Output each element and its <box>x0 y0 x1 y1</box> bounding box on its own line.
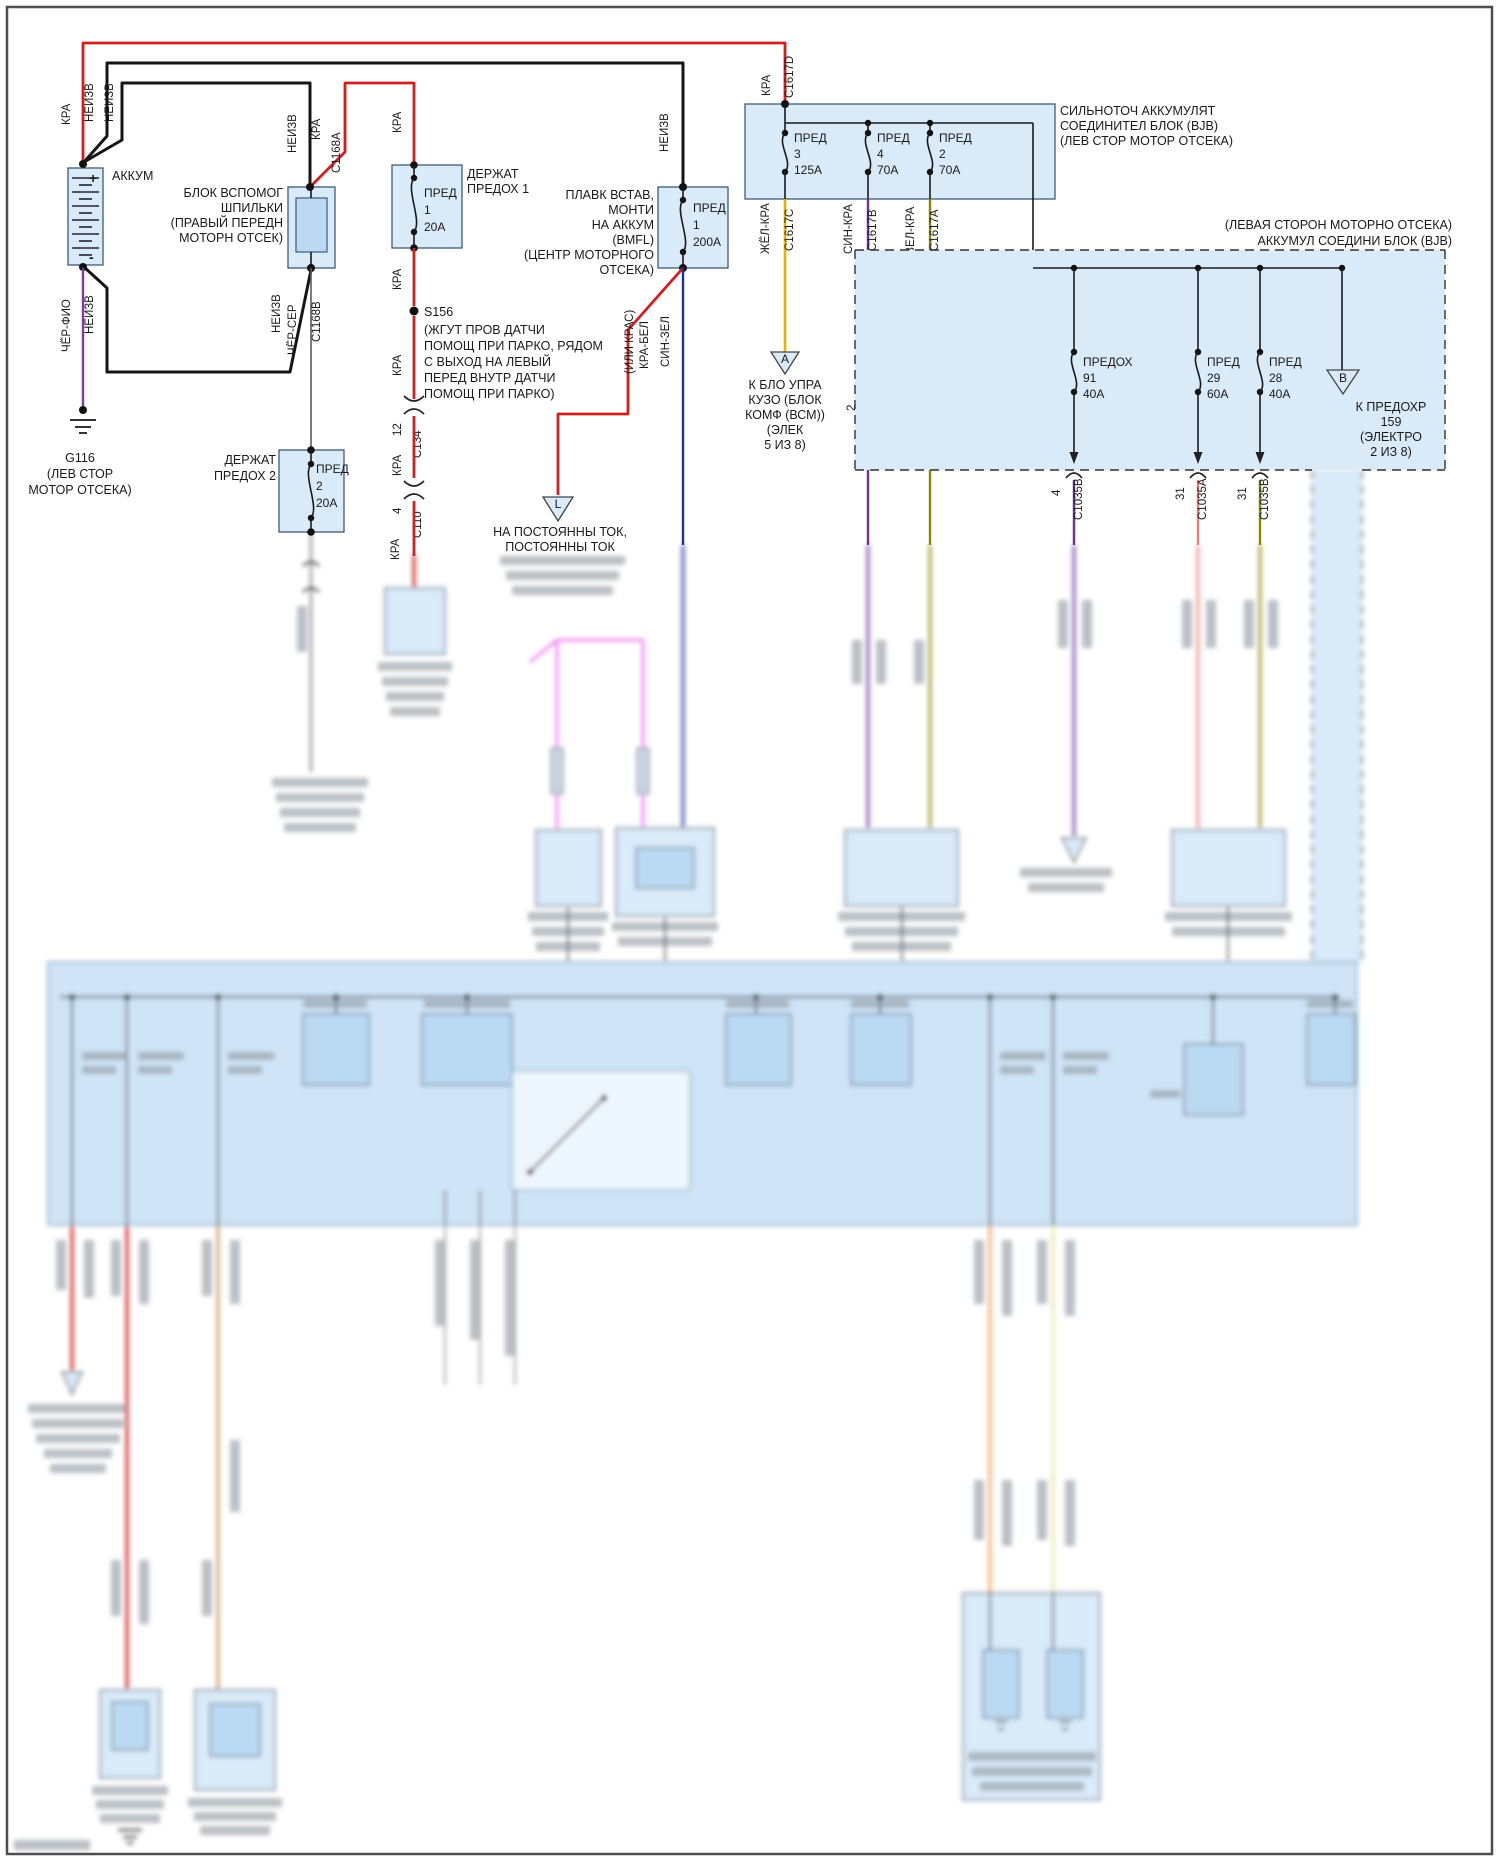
f91-pin: 4 <box>1051 489 1063 496</box>
stud-top-kra: КРА <box>311 118 323 140</box>
f28-amp: 40А <box>1269 387 1290 401</box>
fh2-fuse-amp: 20А <box>316 496 337 510</box>
ref-b-line4: 2 ИЗ 8) <box>1370 445 1412 459</box>
blurred-components-middle <box>272 556 1292 962</box>
ref-l-line1: НА ПОСТОЯННЫ ТОК, <box>493 525 627 539</box>
bjb-f3-name: ПРЕД <box>794 131 827 145</box>
battery-symbol <box>68 168 103 265</box>
bjb-wire-in: КРА <box>761 74 773 96</box>
fh1-fuse-num: 1 <box>424 203 431 217</box>
ref-b-line1: К ПРЕДОХР <box>1356 400 1427 414</box>
battery-minus: - <box>89 249 94 265</box>
wiring-diagram-page: + - АККУМ КРА НЕИЗВ НЕИЗВ ЧЁР-ФИО НЕИЗВ … <box>0 0 1500 1861</box>
ref-b-line3: (ЭЛЕКТРО <box>1360 430 1422 444</box>
s156-line3: С ВЫХОД НА ЛЕВЫЙ <box>424 354 551 369</box>
bjb-title-2: СОЕДИНИТЕЛ БЛОК (BJB) <box>1060 119 1218 133</box>
splice-s156: S156 (ЖГУТ ПРОВ ДАТЧИ ПОМОЩ ПРИ ПАРКО, Р… <box>392 305 603 401</box>
blurred-junction-panel <box>48 962 1357 1225</box>
bmfl-line3: НА АККУМ <box>592 218 654 232</box>
f29-pin: 31 <box>1175 487 1187 500</box>
stud-bot-neizv: НЕИЗВ <box>271 294 283 333</box>
bmfl-line6: ОТСЕКА) <box>599 263 654 277</box>
stud-top-neizv: НЕИЗВ <box>287 114 299 153</box>
fh1-fuse-name: ПРЕД <box>424 186 457 200</box>
bmfl-block: НЕИЗВ ПЛАВК ВСТАВ, МОНТИ НА АККУМ (BMFL)… <box>524 113 728 545</box>
s156-wire-below: КРА <box>392 354 404 376</box>
ref-a-line3: КОМФ (ВСМ)) <box>745 408 825 422</box>
f28-pin: 31 <box>1237 487 1249 500</box>
bjb-f2-wire: ЗЕЛ-КРА <box>905 206 917 254</box>
bjb-f3-wire: ЖЁЛ-КРА <box>760 203 772 254</box>
bjb-f4-name: ПРЕД <box>877 131 910 145</box>
bjb-f2-num: 2 <box>939 147 946 161</box>
ref-b-line2: 159 <box>1381 415 1402 429</box>
bjb-f4-amp: 70А <box>877 163 898 177</box>
fh2-title-1: ДЕРЖАТ <box>224 453 276 467</box>
fh1-fuse-amp: 20А <box>424 220 445 234</box>
bmfl-out-blue: СИН-ЗЕЛ <box>660 316 672 367</box>
wire-label-kra: КРА <box>61 103 73 125</box>
ref-a: А К БЛО УПРА КУЗО (БЛОК КОМФ (ВСМ)) (ЭЛЕ… <box>745 352 825 452</box>
wire-kra-to-bjb <box>83 43 785 166</box>
bjb-f4-num: 4 <box>877 147 884 161</box>
f91-amp: 40А <box>1083 387 1104 401</box>
wire-label-neizv-neg: НЕИЗВ <box>84 295 96 334</box>
blurred-bjb-strip <box>1312 470 1362 963</box>
bmfl-wire-in: НЕИЗВ <box>659 113 671 152</box>
f91-name: ПРЕДОХ <box>1083 355 1133 369</box>
wire-label-neizv-1: НЕИЗВ <box>84 83 96 122</box>
bjb-f2-name: ПРЕД <box>939 131 972 145</box>
s156-line4: ПЕРЕД ВНУТР ДАТЧИ <box>424 371 555 385</box>
bjb-f4-conn: C1617B <box>867 209 879 251</box>
bmfl-out-red1: (ИЛИ КРАС) <box>624 310 636 374</box>
stud-label-2: ШПИЛЬКИ <box>221 201 283 215</box>
connector-c110: 4 КРА C110 <box>390 481 424 560</box>
fh2-fuse-num: 2 <box>316 479 323 493</box>
fh1-wire-out: КРА <box>392 268 404 290</box>
ref-b-letter: В <box>1339 371 1347 385</box>
bmfl-out-red2: КРА-БЕЛ <box>639 321 651 369</box>
s156-line1: (ЖГУТ ПРОВ ДАТЧИ <box>424 323 545 337</box>
blurred-bottom-section <box>14 1225 1100 1850</box>
ref-l: L НА ПОСТОЯННЫ ТОК, ПОСТОЯННЫ ТОК <box>493 497 627 554</box>
ref-l-line2: ПОСТОЯННЫ ТОК <box>505 540 615 554</box>
fh1-title-2: ПРЕДОХ 1 <box>467 182 529 196</box>
bjb-f4-wire: СИН-КРА <box>843 204 855 254</box>
bjb-main-box <box>745 104 1055 199</box>
bmfl-fuse-num: 1 <box>693 218 700 232</box>
connector-c134: 12 КРА C134 <box>392 396 424 478</box>
battery-plus: + <box>89 170 97 186</box>
c134-wire: КРА <box>392 454 404 476</box>
f28-conn: C1035B <box>1259 478 1271 520</box>
blurred-region <box>14 470 1362 1850</box>
f29-num: 29 <box>1207 371 1221 385</box>
ground-id: G116 <box>65 451 95 465</box>
bjb-aux-block: (ЛЕВАЯ СТОРОН МОТОРНО ОТСЕКА) АККУМУЛ СО… <box>855 218 1452 545</box>
bjb-f3-conn: C1617C <box>784 209 796 251</box>
stud-block-inner <box>296 198 327 252</box>
f91-num: 91 <box>1083 371 1097 385</box>
c110-pin: 4 <box>392 507 404 514</box>
bjb-f3-amp: 125А <box>794 163 822 177</box>
bjb-conn-in: C1617D <box>784 56 796 98</box>
wire-kra-bel <box>558 268 683 495</box>
fh2-fuse-name: ПРЕД <box>316 462 349 476</box>
stud-block: БЛОК ВСПОМОГ ШПИЛЬКИ (ПРАВЫЙ ПЕРЕДН МОТО… <box>171 114 343 450</box>
ground-line2: МОТОР ОТСЕКА) <box>28 483 131 497</box>
wiring-diagram: + - АККУМ КРА НЕИЗВ НЕИЗВ ЧЁР-ФИО НЕИЗВ … <box>0 0 1500 1861</box>
bjb-f2-conn: C1617A <box>929 209 941 251</box>
bmfl-line4: (BMFL) <box>612 233 654 247</box>
wire-label-neizv-2: НЕИЗВ <box>104 83 116 122</box>
bjb-aux-title-1: (ЛЕВАЯ СТОРОН МОТОРНО ОТСЕКА) <box>1225 218 1452 232</box>
s156-line2: ПОМОЩ ПРИ ПАРКО, РЯДОМ <box>424 339 603 353</box>
stud-top-conn: C1168A <box>331 132 343 173</box>
bjb-aux-title-2: АККУМУЛ СОЕДИНИ БЛОК (BJB) <box>1258 234 1452 248</box>
f29-conn: C1035A <box>1197 478 1209 520</box>
fh2-title-2: ПРЕДОХ 2 <box>214 469 276 483</box>
s156-line5: ПОМОЩ ПРИ ПАРКО) <box>424 387 555 401</box>
bmfl-fuse-amp: 200А <box>693 235 721 249</box>
stud-label-3: (ПРАВЫЙ ПЕРЕДН <box>171 215 283 230</box>
c134-pin: 12 <box>392 423 404 436</box>
stud-label-1: БЛОК ВСПОМОГ <box>184 186 284 200</box>
ground-icon <box>70 420 96 433</box>
ref-a-line1: К БЛО УПРА <box>748 378 822 392</box>
ground-line1: (ЛЕВ СТОР <box>47 467 113 481</box>
bmfl-line5: (ЦЕНТР МОТОРНОГО <box>524 248 654 262</box>
bjb-f3-num: 3 <box>794 147 801 161</box>
ref-a-line5: 5 ИЗ 8) <box>764 438 806 452</box>
f28-num: 28 <box>1269 371 1283 385</box>
bjb-title-3: (ЛЕВ СТОР МОТОР ОТСЕКА) <box>1060 134 1233 148</box>
c110-wire: КРА <box>390 538 402 560</box>
f29-amp: 60А <box>1207 387 1228 401</box>
f91-conn: C1035B <box>1073 478 1085 520</box>
bmfl-line1: ПЛАВК ВСТАВ, <box>565 188 654 202</box>
stud-bot-conn: C1168B <box>311 301 323 342</box>
ref-a-letter: А <box>781 352 789 366</box>
ref-l-letter: L <box>555 497 562 511</box>
fuse-holder-1: КРА ДЕРЖАТ ПРЕДОХ 1 ПРЕД 1 20А КРА <box>392 111 529 306</box>
bjb-f2-amp: 70А <box>939 163 960 177</box>
f29-name: ПРЕД <box>1207 355 1240 369</box>
bjb-title-1: СИЛЬНОТОЧ АККУМУЛЯТ <box>1060 104 1216 118</box>
stud-bot-cher-ser: ЧЁР-СЕР <box>287 304 299 355</box>
fuse-holder-2: ДЕРЖАТ ПРЕДОХ 2 ПРЕД 2 20А <box>214 446 349 536</box>
bmfl-line2: МОНТИ <box>608 203 654 217</box>
s156-id: S156 <box>424 305 453 319</box>
battery-label: АККУМ <box>112 169 153 183</box>
fh1-title-1: ДЕРЖАТ <box>467 167 519 181</box>
bjb-aux-fill <box>855 250 1445 470</box>
bmfl-fuse-name: ПРЕД <box>693 201 726 215</box>
ref-a-line2: КУЗО (БЛОК <box>748 393 822 407</box>
fh1-wire-in: КРА <box>392 111 404 133</box>
wire-label-cher-fio: ЧЁР-ФИО <box>61 299 73 352</box>
stud-label-4: МОТОРН ОТСЕК) <box>179 231 283 245</box>
ref-a-line4: (ЭЛЕК <box>767 423 804 437</box>
ground-g116: G116 (ЛЕВ СТОР МОТОР ОТСЕКА) <box>28 268 131 497</box>
splice-dot <box>410 307 419 316</box>
f28-name: ПРЕД <box>1269 355 1302 369</box>
